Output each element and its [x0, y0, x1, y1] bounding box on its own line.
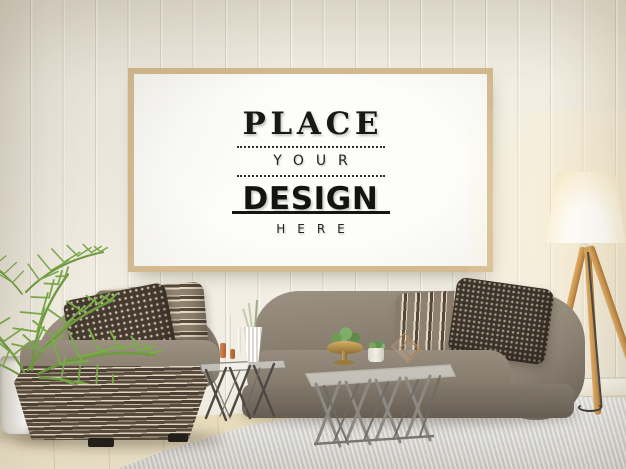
sofa-foot	[168, 434, 188, 442]
mini-pot	[368, 348, 384, 362]
poster-frame: PLACE YOUR DESIGN HERE	[128, 68, 493, 272]
wire-coffee-table	[300, 352, 458, 452]
poster: PLACE YOUR DESIGN HERE	[134, 74, 487, 266]
poster-line-place: PLACE	[242, 108, 383, 141]
amber-candle	[230, 349, 235, 359]
palm-plant	[0, 172, 178, 384]
poster-line-your: YOUR	[273, 153, 359, 169]
lamp-shade	[546, 172, 626, 243]
dotted-divider-top	[237, 146, 385, 148]
sofa-foot	[88, 438, 114, 447]
bowl-base	[334, 360, 354, 365]
taper-candle	[237, 327, 241, 354]
poster-line-here: HERE	[276, 222, 357, 236]
dotted-divider-bottom	[237, 175, 385, 177]
design-underline	[232, 211, 390, 214]
wire-side-table	[196, 352, 288, 424]
lamp-cord-curl	[578, 403, 602, 412]
living-room-scene: PLACE YOUR DESIGN HERE	[0, 0, 626, 469]
taper-candle	[226, 314, 231, 352]
amber-candle	[220, 343, 226, 358]
